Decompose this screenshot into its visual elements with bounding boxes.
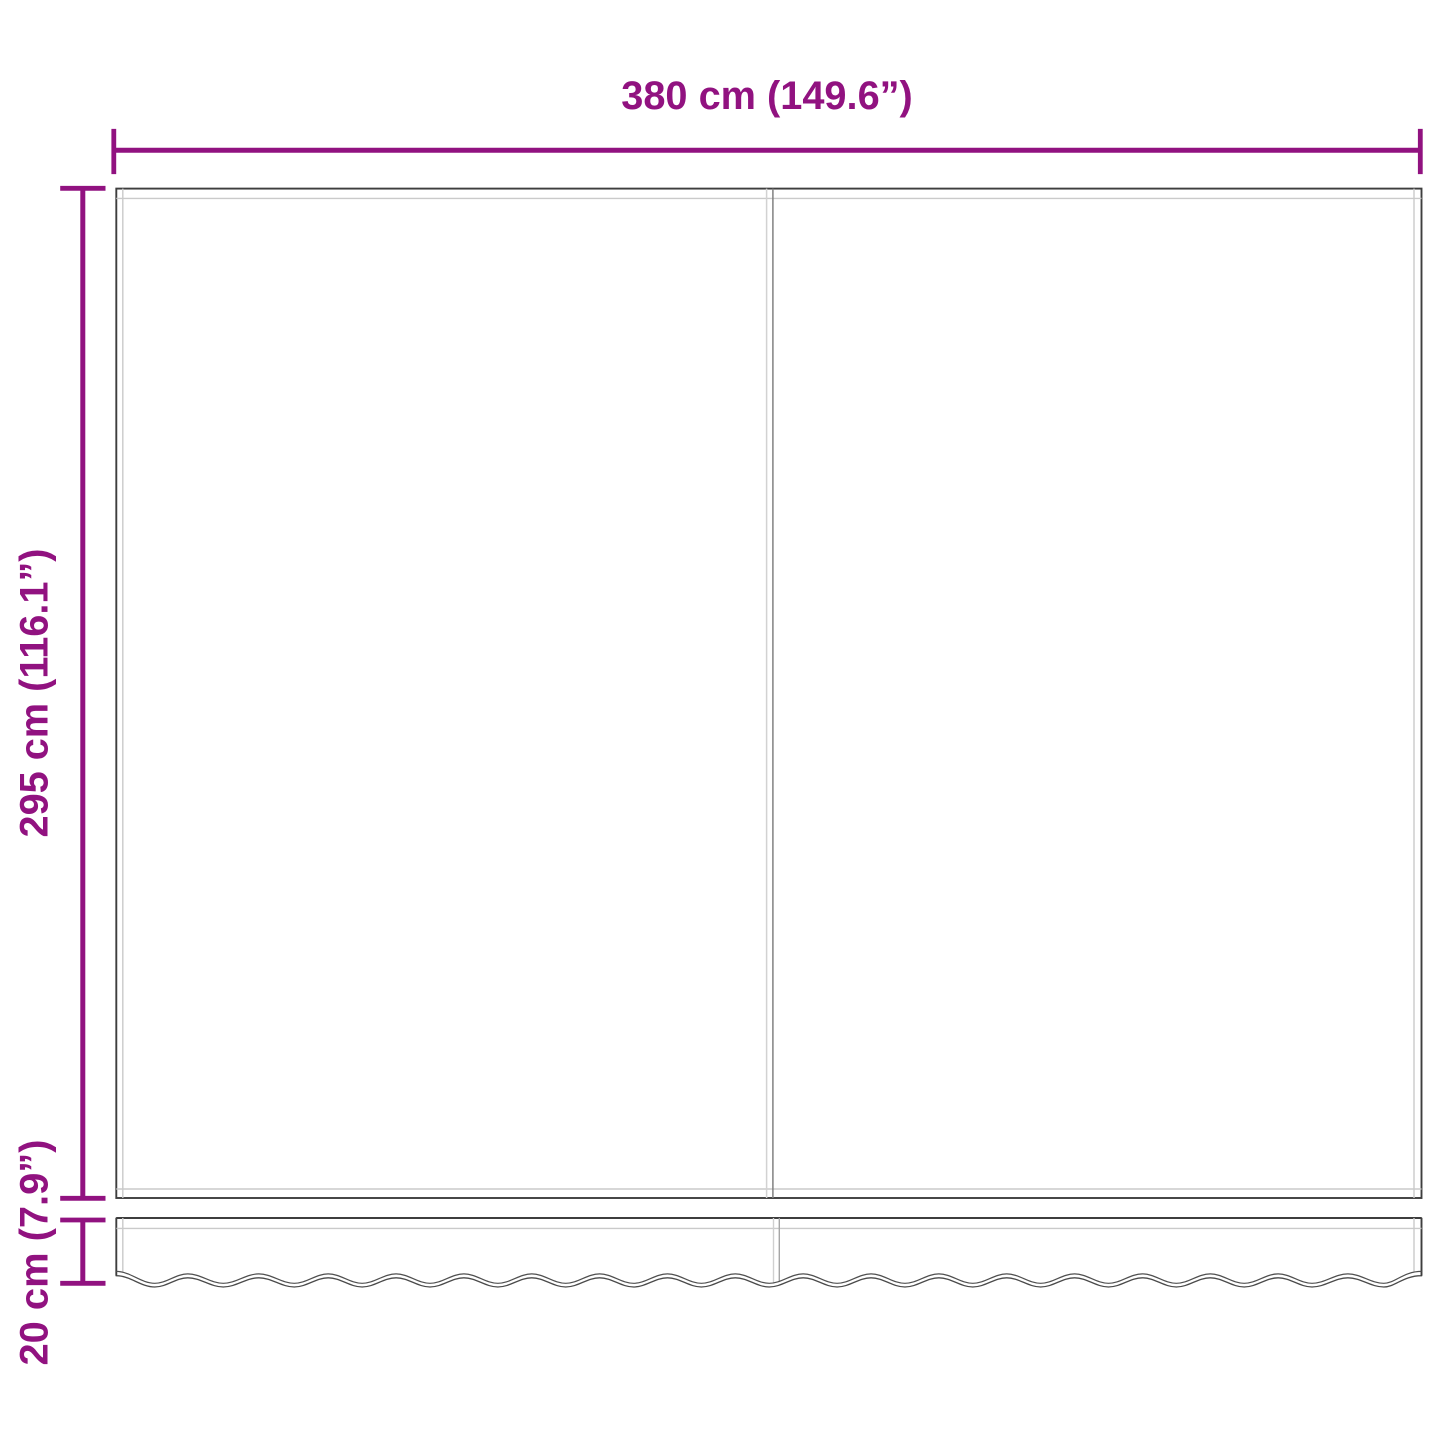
svg-text:295 cm (116.1”): 295 cm (116.1”) xyxy=(13,549,57,838)
svg-text:20 cm (7.9”): 20 cm (7.9”) xyxy=(13,1140,57,1366)
svg-text:380 cm (149.6”): 380 cm (149.6”) xyxy=(621,74,913,118)
